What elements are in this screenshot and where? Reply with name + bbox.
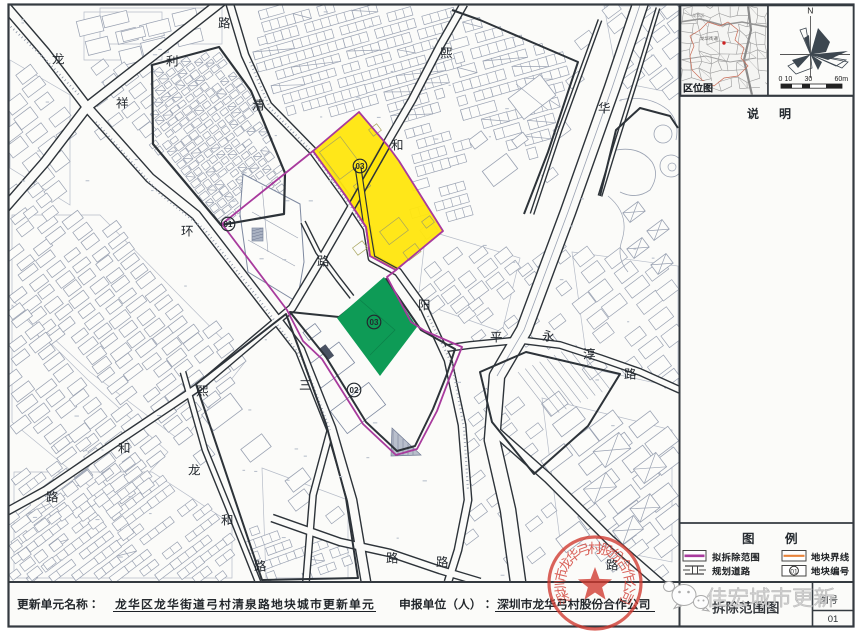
svg-text:60m: 60m [835, 76, 849, 83]
svg-text:01: 01 [224, 220, 233, 229]
svg-text:03: 03 [370, 318, 379, 327]
svg-text:01: 01 [828, 614, 839, 625]
svg-text:03: 03 [356, 162, 365, 171]
svg-text:N: N [807, 6, 813, 16]
svg-text:10: 10 [785, 76, 793, 83]
svg-text:02: 02 [350, 386, 359, 395]
svg-text:30: 30 [805, 76, 813, 83]
svg-text:01: 01 [790, 568, 798, 575]
svg-text:0: 0 [779, 76, 783, 83]
